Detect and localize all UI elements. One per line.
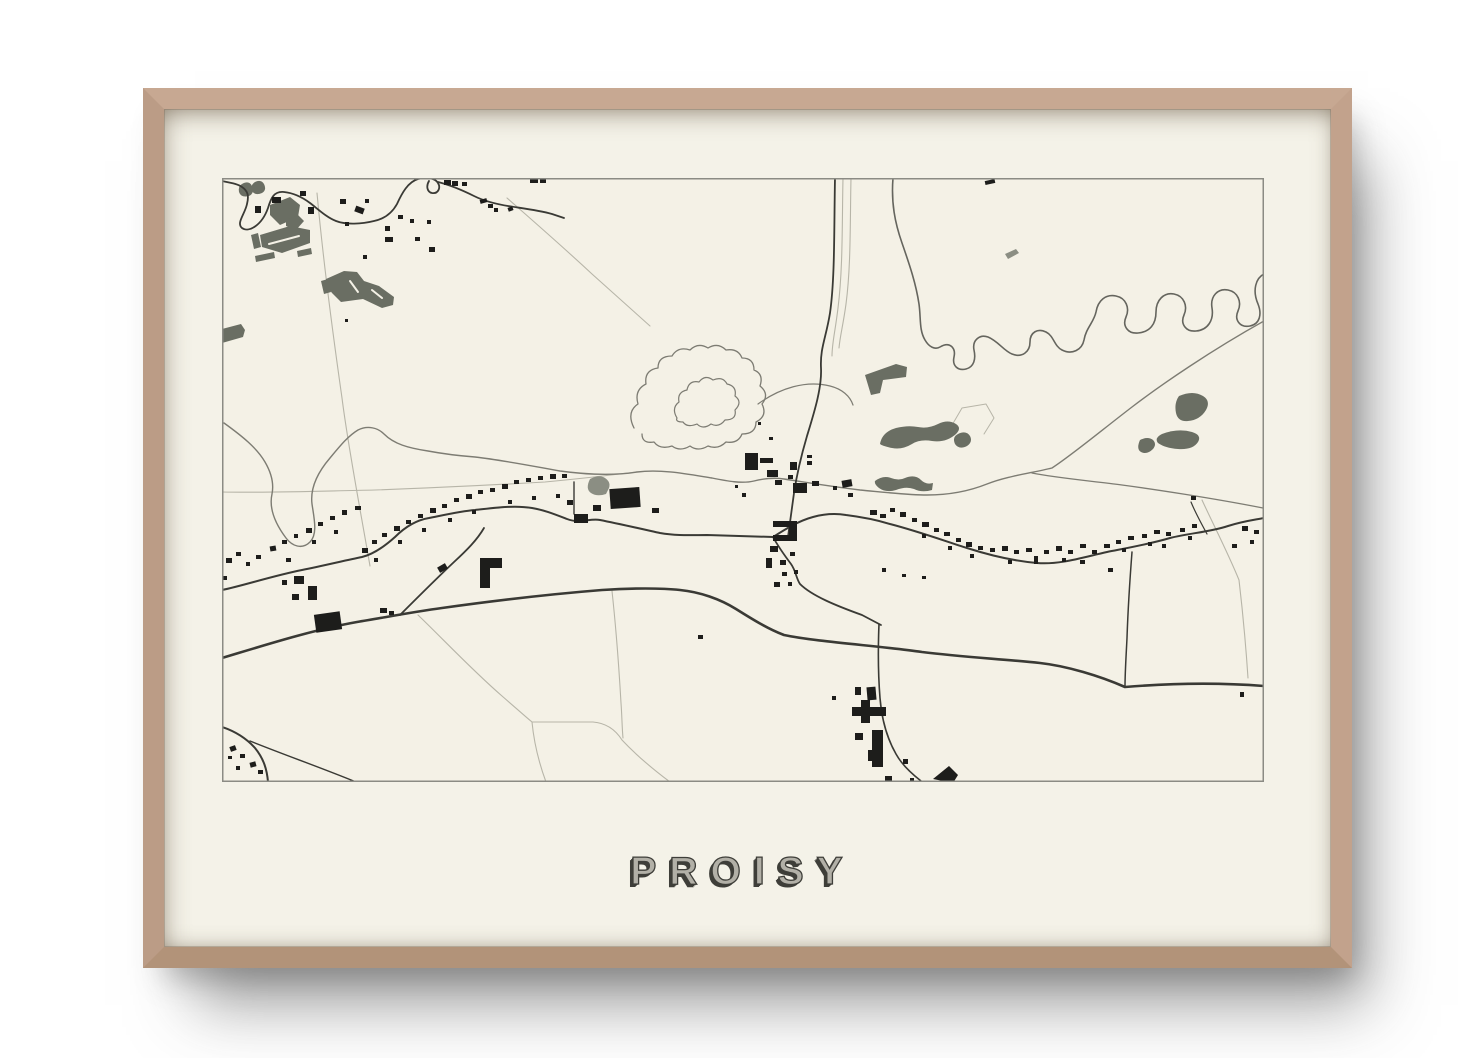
map-area bbox=[222, 178, 1264, 782]
poster-title-text: PROISY bbox=[630, 850, 855, 893]
wall-background: PROISY bbox=[0, 0, 1480, 1058]
poster-title: PROISY bbox=[222, 850, 1264, 894]
poster-frame: PROISY bbox=[143, 88, 1352, 968]
poster-mat: PROISY bbox=[164, 109, 1331, 947]
city-map-graphic bbox=[222, 178, 1264, 782]
